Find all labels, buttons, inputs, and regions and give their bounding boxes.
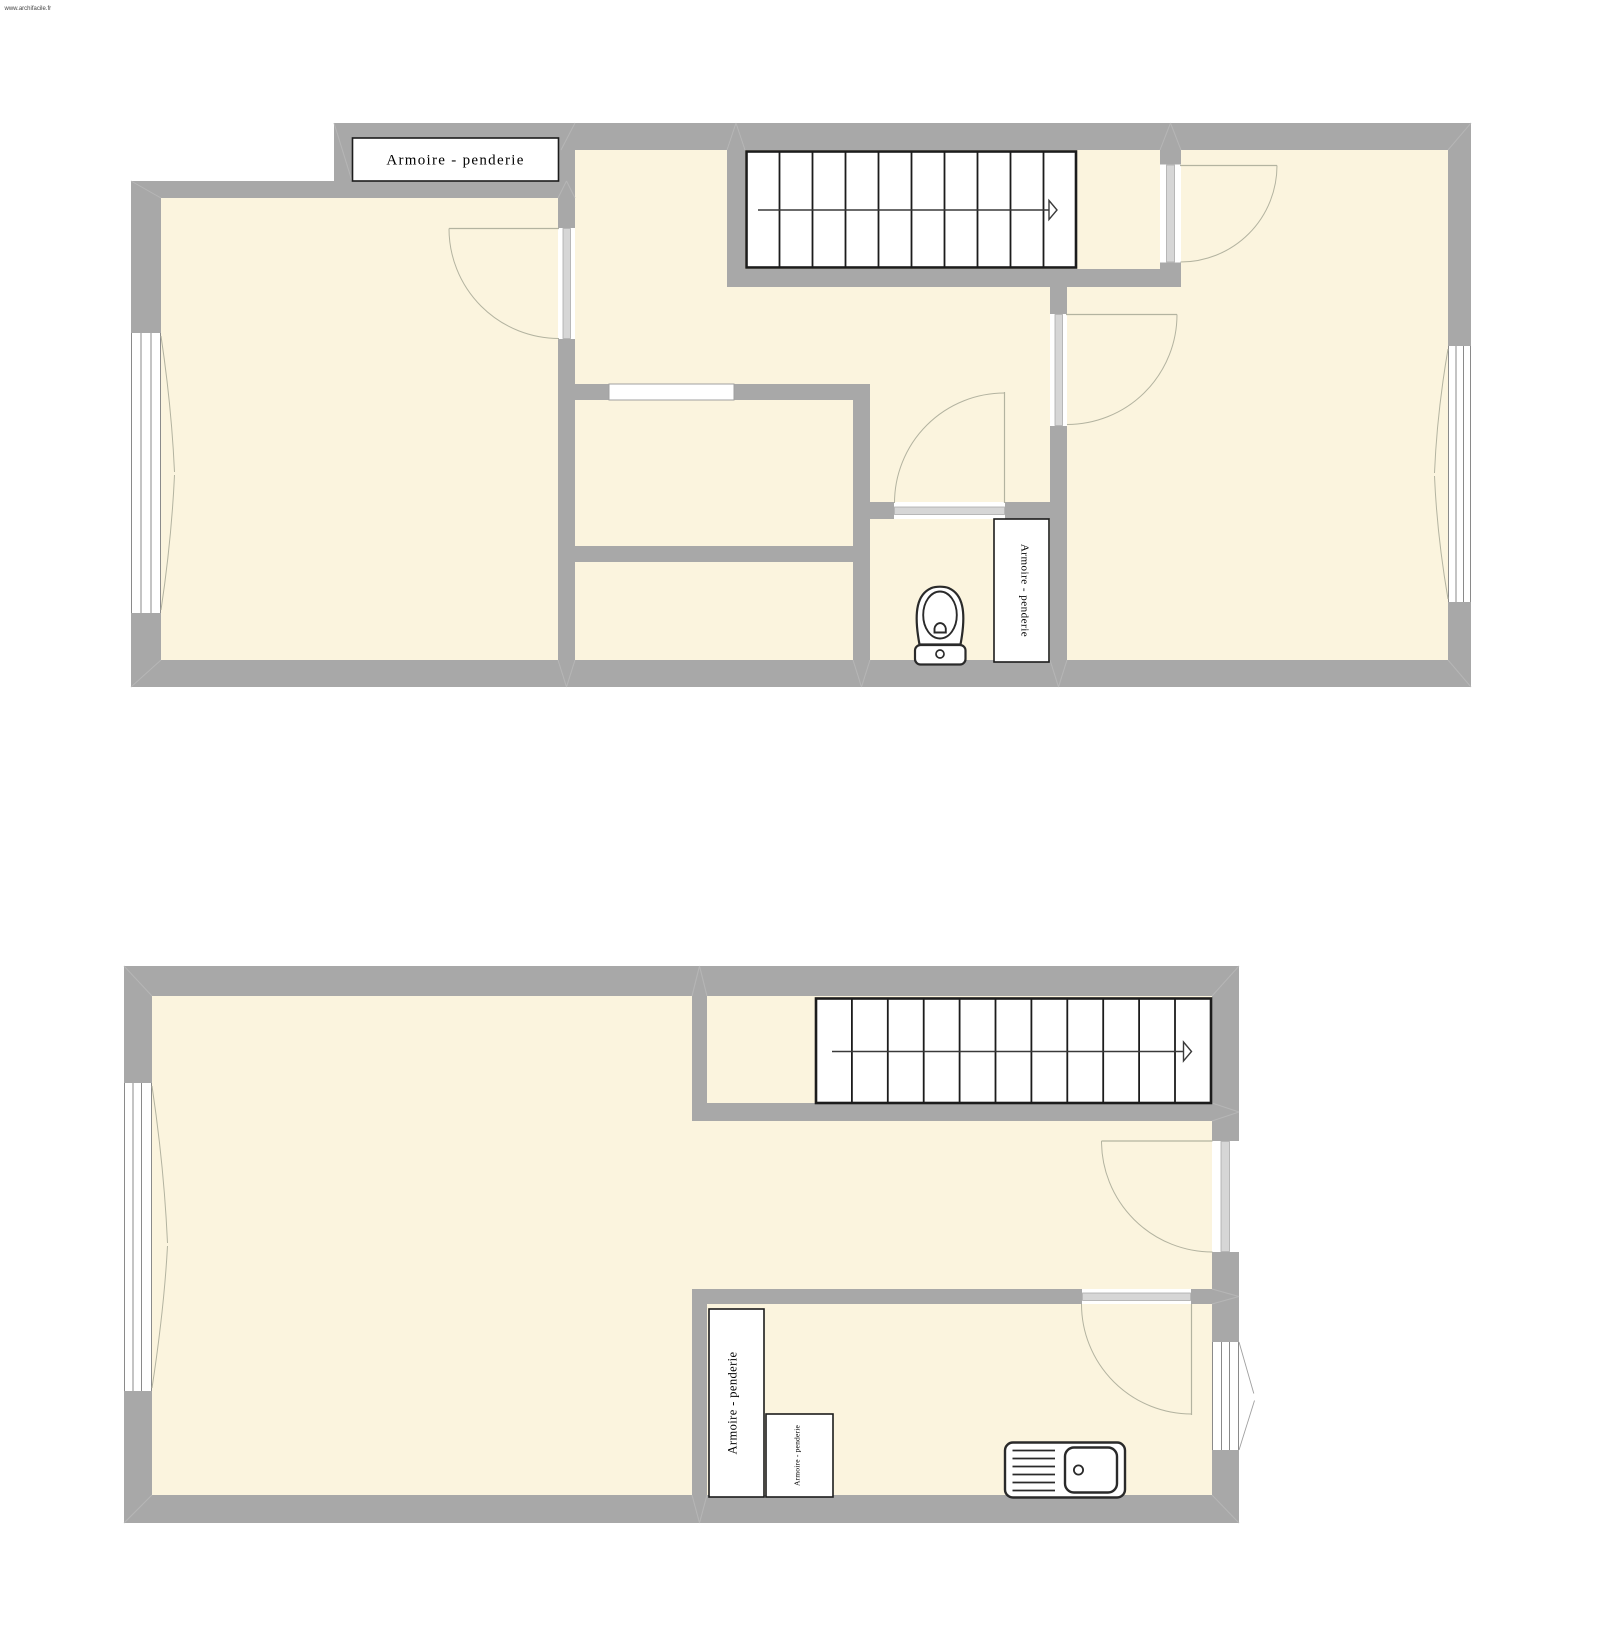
svg-text:Armoire - penderie: Armoire - penderie — [793, 1424, 802, 1486]
svg-text:Armoire - penderie: Armoire - penderie — [386, 153, 524, 169]
svg-text:Armoire - penderie: Armoire - penderie — [726, 1351, 740, 1454]
svg-text:Armoire - penderie: Armoire - penderie — [1019, 544, 1031, 637]
svg-text:www.archifacile.fr: www.archifacile.fr — [4, 6, 52, 12]
